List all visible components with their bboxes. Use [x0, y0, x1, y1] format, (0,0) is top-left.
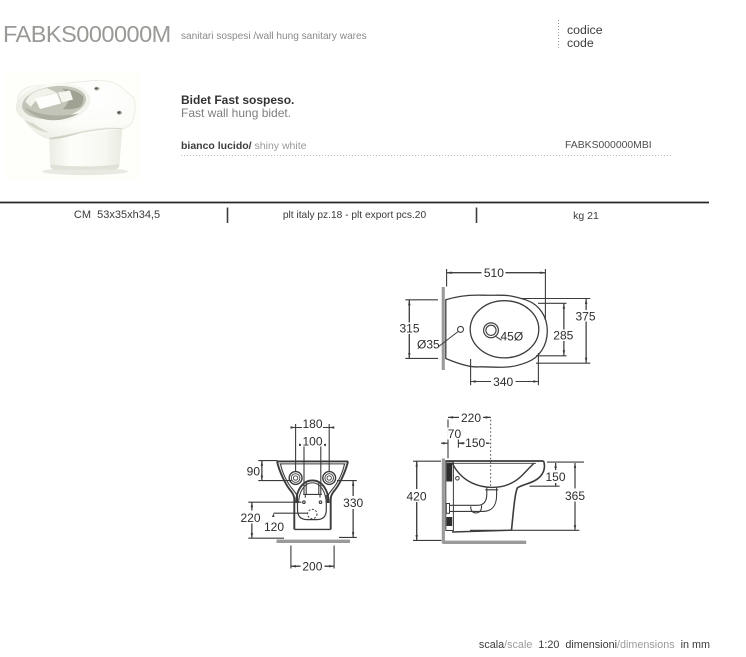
svg-text:420: 420	[406, 489, 426, 503]
svg-text:365: 365	[565, 489, 585, 503]
svg-text:510: 510	[484, 266, 504, 280]
svg-text:90: 90	[247, 465, 261, 479]
svg-text:200: 200	[302, 560, 322, 574]
svg-text:220: 220	[240, 511, 260, 525]
svg-text:150: 150	[545, 470, 565, 484]
svg-text:315: 315	[399, 322, 419, 336]
svg-text:285: 285	[553, 329, 573, 343]
svg-text:120: 120	[264, 520, 284, 534]
svg-text:150: 150	[465, 436, 485, 450]
svg-text:330: 330	[343, 496, 363, 510]
svg-text:Ø35: Ø35	[417, 338, 440, 352]
svg-text:70: 70	[448, 427, 462, 441]
svg-text:220: 220	[461, 411, 481, 425]
svg-text:100: 100	[302, 435, 322, 449]
svg-text:375: 375	[575, 309, 595, 323]
svg-text:180: 180	[302, 417, 322, 431]
svg-text:340: 340	[493, 375, 513, 389]
svg-text:45Ø: 45Ø	[501, 330, 524, 344]
